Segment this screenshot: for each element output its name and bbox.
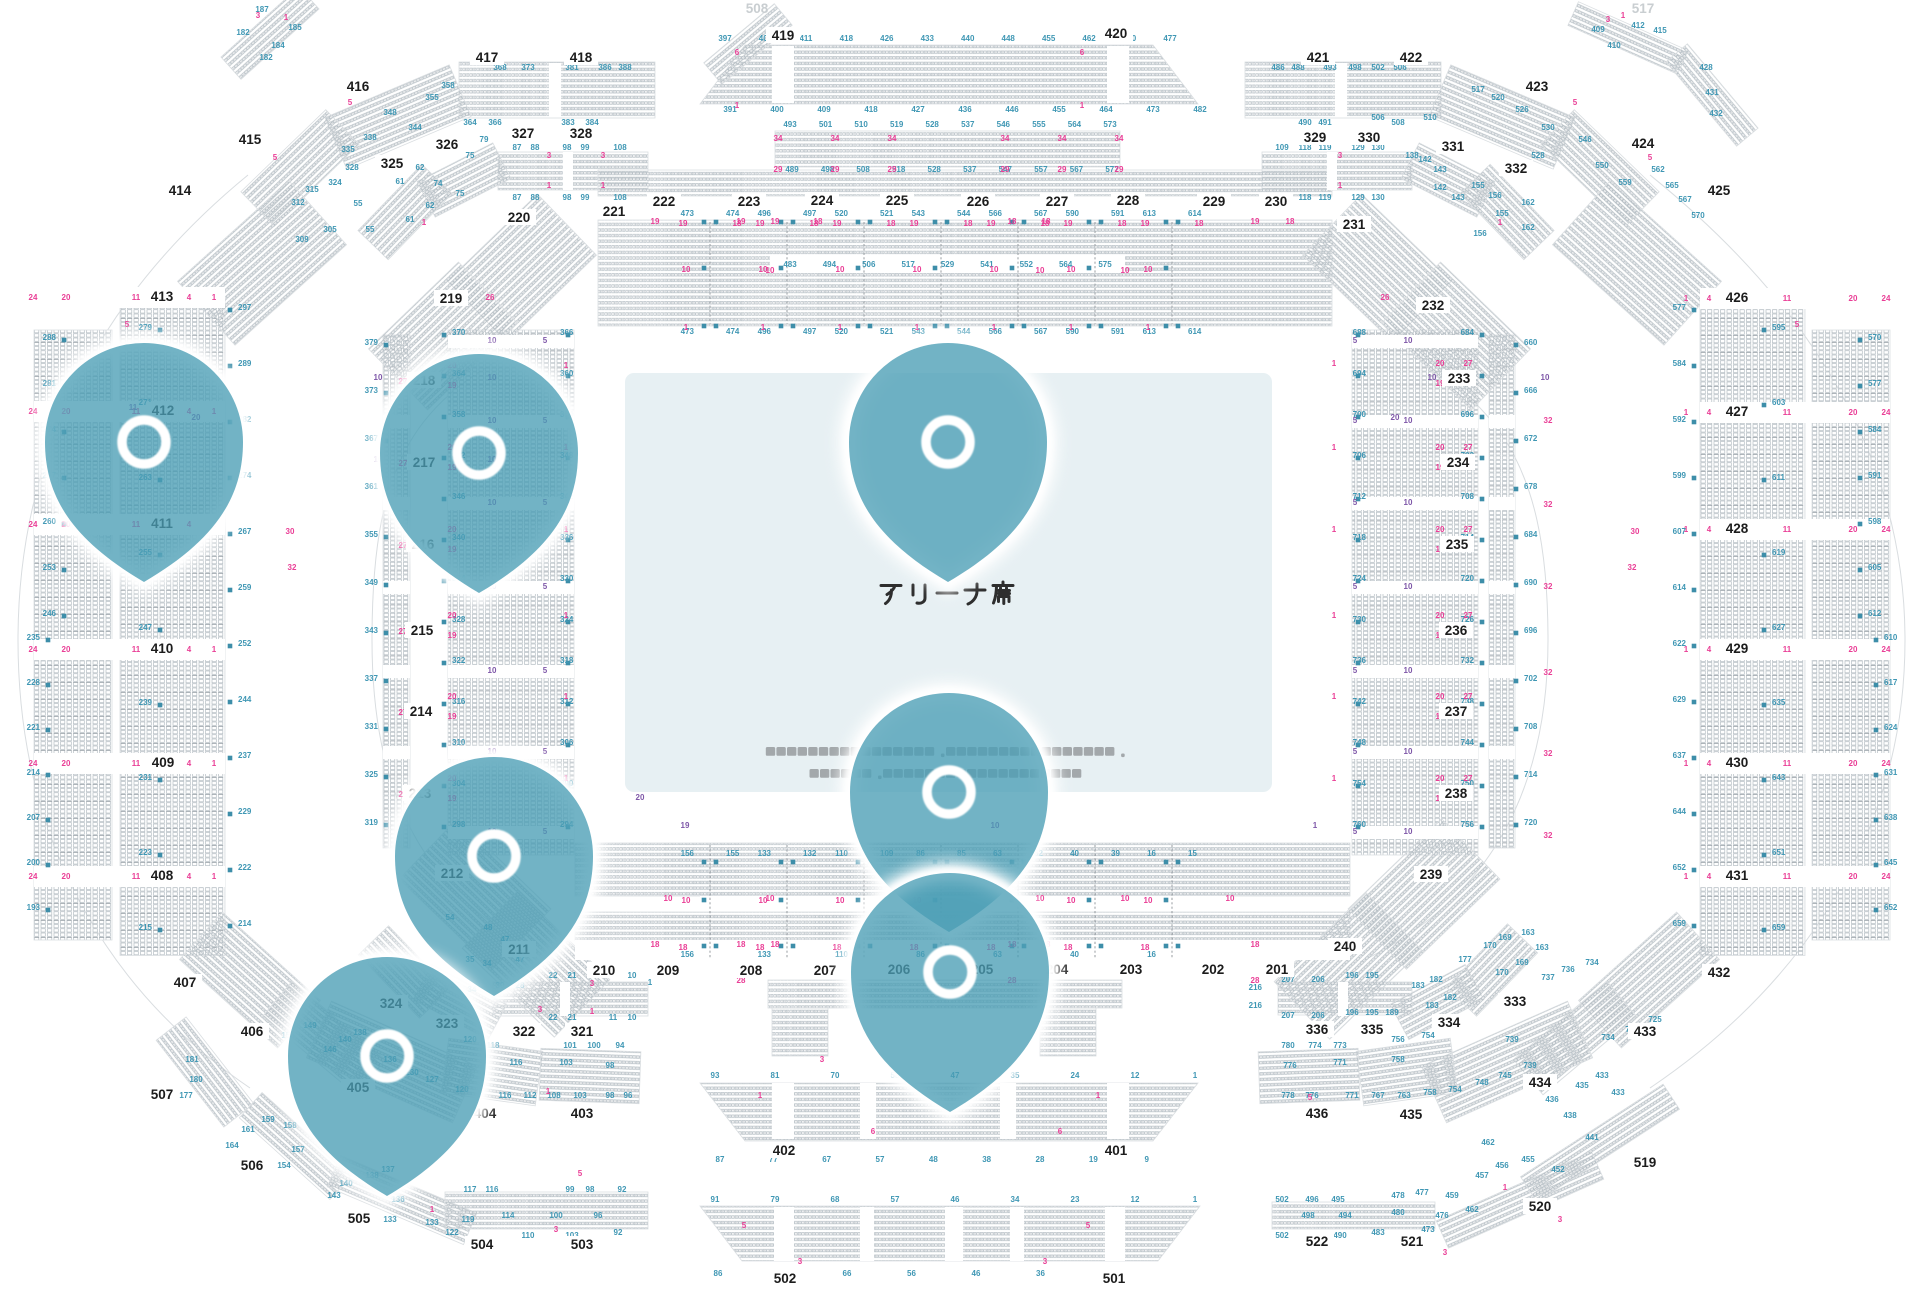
svg-text:5: 5 (348, 98, 353, 107)
svg-text:773: 773 (1333, 1041, 1347, 1050)
svg-text:1: 1 (1684, 294, 1689, 303)
svg-text:10: 10 (1144, 896, 1153, 905)
svg-text:18: 18 (1251, 940, 1260, 949)
svg-text:564: 564 (1068, 120, 1082, 129)
svg-text:87: 87 (513, 193, 522, 202)
svg-text:183: 183 (1425, 1001, 1439, 1010)
svg-text:520: 520 (1491, 93, 1505, 102)
svg-text:88: 88 (531, 143, 540, 152)
svg-text:48: 48 (929, 1155, 938, 1164)
svg-text:433: 433 (1611, 1088, 1625, 1097)
svg-text:20: 20 (62, 872, 71, 881)
svg-text:483: 483 (1371, 1228, 1385, 1237)
svg-text:221: 221 (603, 204, 626, 219)
svg-text:132: 132 (803, 849, 817, 858)
svg-text:415: 415 (1653, 26, 1667, 35)
svg-text:638: 638 (1884, 813, 1898, 822)
svg-text:163: 163 (1535, 943, 1549, 952)
svg-text:742: 742 (1353, 697, 1367, 706)
svg-text:1: 1 (1684, 408, 1689, 417)
svg-text:428: 428 (1699, 63, 1713, 72)
svg-text:1: 1 (1069, 323, 1074, 332)
svg-text:98: 98 (606, 1091, 615, 1100)
svg-text:237: 237 (238, 751, 252, 760)
svg-text:26: 26 (486, 293, 495, 302)
svg-text:528: 528 (926, 120, 940, 129)
svg-text:732: 732 (1461, 656, 1475, 665)
svg-text:659: 659 (1673, 919, 1687, 928)
svg-text:235: 235 (1446, 537, 1469, 552)
svg-text:473: 473 (1146, 105, 1160, 114)
svg-text:409: 409 (152, 755, 175, 770)
svg-text:1: 1 (1684, 645, 1689, 654)
svg-text:330: 330 (560, 574, 574, 583)
svg-text:739: 739 (1523, 1061, 1537, 1070)
svg-text:119: 119 (462, 1215, 475, 1224)
svg-text:1: 1 (564, 361, 569, 370)
svg-text:780: 780 (1281, 1041, 1295, 1050)
svg-text:1: 1 (1332, 692, 1337, 701)
svg-text:474: 474 (726, 327, 740, 336)
svg-text:330: 330 (1358, 130, 1381, 145)
svg-text:501: 501 (1103, 1271, 1126, 1286)
svg-text:544: 544 (957, 209, 971, 218)
svg-text:10: 10 (628, 971, 637, 980)
svg-text:183: 183 (1411, 981, 1425, 990)
svg-text:10: 10 (682, 896, 691, 905)
svg-text:62: 62 (416, 163, 425, 172)
svg-text:27: 27 (1464, 525, 1473, 534)
svg-text:11: 11 (132, 759, 141, 768)
svg-text:1: 1 (684, 323, 689, 332)
svg-text:20: 20 (1391, 413, 1400, 422)
svg-text:19: 19 (1064, 219, 1073, 228)
svg-text:758: 758 (1423, 1088, 1437, 1097)
svg-text:1: 1 (284, 13, 289, 22)
svg-text:4: 4 (1707, 294, 1712, 303)
svg-text:5: 5 (543, 336, 548, 345)
svg-text:310: 310 (452, 738, 466, 747)
svg-text:28: 28 (1251, 976, 1260, 985)
svg-text:170: 170 (1483, 941, 1497, 950)
svg-text:489: 489 (785, 165, 799, 174)
svg-text:490: 490 (1298, 118, 1312, 127)
svg-text:18: 18 (887, 219, 896, 228)
svg-text:18: 18 (771, 940, 780, 949)
svg-text:1: 1 (1080, 101, 1085, 110)
svg-text:10: 10 (1036, 266, 1045, 275)
svg-text:452: 452 (1551, 1165, 1565, 1174)
svg-text:29: 29 (831, 165, 840, 174)
svg-text:478: 478 (1391, 1191, 1405, 1200)
svg-text:21: 21 (568, 971, 577, 980)
svg-text:1: 1 (1332, 774, 1337, 783)
svg-text:416: 416 (347, 79, 370, 94)
svg-text:714: 714 (1524, 770, 1538, 779)
svg-text:109: 109 (1275, 143, 1289, 152)
svg-text:20: 20 (62, 293, 71, 302)
svg-text:233: 233 (1448, 371, 1471, 386)
svg-text:24: 24 (1882, 759, 1891, 768)
svg-text:18: 18 (756, 943, 765, 952)
svg-text:19: 19 (756, 219, 765, 228)
svg-text:575: 575 (1098, 260, 1112, 269)
svg-text:237: 237 (1445, 704, 1468, 719)
svg-text:519: 519 (890, 120, 904, 129)
svg-text:66: 66 (843, 1269, 852, 1278)
svg-text:526: 526 (1515, 105, 1529, 114)
svg-text:29: 29 (888, 165, 897, 174)
svg-text:403: 403 (571, 1106, 594, 1121)
svg-text:326: 326 (436, 137, 459, 152)
svg-text:4: 4 (187, 645, 192, 654)
svg-text:11: 11 (132, 645, 141, 654)
svg-text:24: 24 (1071, 1071, 1080, 1080)
svg-text:203: 203 (1120, 962, 1143, 977)
svg-text:496: 496 (1305, 1195, 1319, 1204)
svg-text:177: 177 (179, 1091, 193, 1100)
svg-text:34: 34 (888, 134, 897, 143)
svg-text:763: 763 (1397, 1091, 1411, 1100)
svg-text:29: 29 (1115, 165, 1124, 174)
svg-text:55: 55 (354, 199, 363, 208)
svg-text:19: 19 (987, 219, 996, 228)
svg-text:497: 497 (803, 327, 817, 336)
svg-text:426: 426 (1726, 290, 1749, 305)
svg-text:557: 557 (1034, 165, 1048, 174)
svg-text:5: 5 (1353, 416, 1358, 425)
svg-text:567: 567 (1034, 327, 1048, 336)
svg-text:459: 459 (1445, 1191, 1459, 1200)
svg-text:240: 240 (1334, 939, 1357, 954)
svg-text:18: 18 (1286, 217, 1295, 226)
svg-text:34: 34 (831, 134, 840, 143)
svg-text:432: 432 (1708, 965, 1731, 980)
svg-text:39: 39 (1111, 849, 1120, 858)
svg-text:20: 20 (1849, 525, 1858, 534)
svg-text:20: 20 (1849, 294, 1858, 303)
svg-text:745: 745 (1498, 1071, 1512, 1080)
svg-text:20: 20 (62, 645, 71, 654)
svg-text:400: 400 (770, 105, 784, 114)
svg-text:46: 46 (951, 1195, 960, 1204)
svg-text:27: 27 (1464, 359, 1473, 368)
svg-text:659: 659 (1772, 923, 1786, 932)
svg-text:530: 530 (1541, 123, 1555, 132)
svg-text:10: 10 (1404, 666, 1413, 675)
svg-text:736: 736 (1561, 965, 1575, 974)
svg-text:100: 100 (549, 1211, 563, 1220)
svg-text:98: 98 (563, 193, 572, 202)
svg-text:321: 321 (571, 1024, 594, 1039)
svg-text:355: 355 (425, 93, 439, 102)
svg-text:427: 427 (911, 105, 925, 114)
svg-text:32: 32 (1544, 416, 1553, 425)
svg-text:386: 386 (598, 63, 612, 72)
svg-text:1: 1 (1621, 11, 1626, 20)
svg-text:19: 19 (448, 712, 457, 721)
svg-text:408: 408 (151, 868, 174, 883)
svg-text:1: 1 (1684, 872, 1689, 881)
svg-text:86: 86 (714, 1269, 723, 1278)
svg-text:196: 196 (1345, 1008, 1359, 1017)
svg-text:476: 476 (1435, 1211, 1449, 1220)
svg-text:522: 522 (1306, 1234, 1329, 1249)
svg-text:10: 10 (1226, 894, 1235, 903)
svg-text:206: 206 (1311, 975, 1325, 984)
svg-text:483: 483 (783, 260, 797, 269)
svg-text:244: 244 (238, 695, 252, 704)
svg-text:34: 34 (1058, 134, 1067, 143)
svg-text:5: 5 (1308, 1093, 1313, 1102)
svg-text:631: 631 (1884, 768, 1898, 777)
svg-text:169: 169 (1498, 933, 1512, 942)
svg-text:230: 230 (1265, 194, 1288, 209)
svg-text:331: 331 (365, 722, 379, 731)
svg-text:652: 652 (1884, 903, 1898, 912)
svg-text:462: 462 (1082, 34, 1096, 43)
svg-text:289: 289 (238, 359, 252, 368)
svg-text:480: 480 (1391, 1208, 1405, 1217)
svg-text:22: 22 (549, 971, 558, 980)
svg-text:20: 20 (448, 692, 457, 701)
svg-text:10: 10 (836, 265, 845, 274)
svg-text:424: 424 (1632, 136, 1655, 151)
svg-text:696: 696 (1461, 410, 1475, 419)
svg-text:448: 448 (1002, 34, 1016, 43)
svg-text:133: 133 (383, 1215, 397, 1224)
svg-text:112: 112 (524, 1091, 537, 1100)
svg-text:91: 91 (711, 1195, 720, 1204)
svg-text:508: 508 (856, 165, 870, 174)
svg-text:94: 94 (616, 1041, 625, 1050)
svg-text:435: 435 (1400, 1107, 1423, 1122)
svg-text:19: 19 (679, 219, 688, 228)
svg-text:694: 694 (1353, 369, 1367, 378)
svg-text:155: 155 (1495, 209, 1509, 218)
svg-text:1: 1 (1684, 759, 1689, 768)
svg-text:10: 10 (759, 265, 768, 274)
svg-text:537: 537 (963, 165, 977, 174)
svg-text:550: 550 (1595, 161, 1609, 170)
svg-text:418: 418 (864, 105, 878, 114)
svg-text:92: 92 (618, 1185, 627, 1194)
svg-text:55: 55 (366, 225, 375, 234)
svg-text:142: 142 (1418, 155, 1432, 164)
svg-text:730: 730 (1353, 615, 1367, 624)
svg-text:117: 117 (464, 1185, 477, 1194)
svg-text:11: 11 (132, 872, 141, 881)
svg-text:92: 92 (614, 1228, 623, 1237)
svg-text:101: 101 (563, 1041, 577, 1050)
svg-text:584: 584 (1673, 359, 1687, 368)
svg-text:19: 19 (448, 631, 457, 640)
svg-text:438: 438 (1563, 1111, 1577, 1120)
svg-text:20: 20 (1436, 611, 1445, 620)
svg-text:1: 1 (212, 872, 217, 881)
svg-text:11: 11 (1783, 525, 1792, 534)
svg-text:373: 373 (365, 386, 379, 395)
svg-text:253: 253 (43, 563, 57, 572)
svg-text:414: 414 (169, 183, 192, 198)
svg-text:98: 98 (563, 143, 572, 152)
svg-text:19: 19 (651, 217, 660, 226)
svg-text:613: 613 (1143, 209, 1157, 218)
svg-text:427: 427 (1726, 404, 1749, 419)
svg-text:20: 20 (1436, 359, 1445, 368)
svg-text:434: 434 (1529, 1075, 1552, 1090)
svg-text:5: 5 (1353, 747, 1358, 756)
svg-text:163: 163 (1521, 928, 1535, 937)
svg-text:706: 706 (1353, 451, 1367, 460)
svg-text:220: 220 (508, 210, 531, 225)
svg-text:355: 355 (365, 530, 379, 539)
svg-text:577: 577 (1673, 303, 1687, 312)
svg-text:57: 57 (876, 1155, 885, 1164)
svg-text:1: 1 (564, 692, 569, 701)
svg-text:87: 87 (716, 1155, 725, 1164)
svg-text:614: 614 (1188, 327, 1202, 336)
svg-text:748: 748 (1475, 1078, 1489, 1087)
svg-text:11: 11 (1783, 759, 1792, 768)
svg-text:9: 9 (1144, 1155, 1149, 1164)
svg-text:552: 552 (1020, 260, 1034, 269)
svg-text:24: 24 (1882, 645, 1891, 654)
svg-text:335: 335 (1361, 1022, 1384, 1037)
svg-text:87: 87 (513, 143, 522, 152)
svg-text:614: 614 (1188, 209, 1202, 218)
svg-text:776: 776 (1283, 1061, 1297, 1070)
svg-text:10: 10 (1144, 265, 1153, 274)
svg-text:133: 133 (758, 849, 772, 858)
svg-text:348: 348 (383, 108, 397, 117)
svg-text:75: 75 (466, 151, 475, 160)
svg-text:1: 1 (1193, 1195, 1198, 1204)
svg-text:401: 401 (1105, 1143, 1128, 1158)
svg-text:322: 322 (513, 1024, 536, 1039)
svg-text:343: 343 (365, 626, 379, 635)
svg-text:546: 546 (1578, 135, 1592, 144)
svg-text:18: 18 (810, 219, 819, 228)
svg-text:201: 201 (1266, 962, 1289, 977)
svg-text:10: 10 (1541, 373, 1550, 382)
svg-text:455: 455 (1052, 105, 1066, 114)
svg-text:75: 75 (456, 189, 465, 198)
svg-text:99: 99 (581, 193, 590, 202)
svg-text:231: 231 (1343, 217, 1366, 232)
svg-text:433: 433 (1595, 1071, 1609, 1080)
svg-text:3: 3 (1558, 1215, 1563, 1224)
svg-text:6: 6 (871, 1127, 876, 1136)
svg-text:652: 652 (1673, 863, 1687, 872)
svg-text:20: 20 (62, 759, 71, 768)
svg-text:79: 79 (480, 135, 489, 144)
svg-text:18: 18 (1064, 943, 1073, 952)
svg-text:133: 133 (425, 1218, 439, 1227)
svg-text:234: 234 (1447, 455, 1470, 470)
svg-text:306: 306 (560, 738, 574, 747)
svg-text:322: 322 (452, 656, 466, 665)
svg-text:720: 720 (1461, 574, 1475, 583)
svg-text:19: 19 (910, 219, 919, 228)
svg-text:591: 591 (1111, 327, 1125, 336)
svg-text:164: 164 (225, 1141, 239, 1150)
svg-text:758: 758 (1391, 1055, 1405, 1064)
svg-text:18: 18 (1041, 219, 1050, 228)
svg-text:349: 349 (365, 578, 379, 587)
svg-text:98: 98 (606, 1061, 615, 1070)
svg-text:754: 754 (1421, 1031, 1435, 1040)
svg-text:34: 34 (774, 134, 783, 143)
svg-text:508: 508 (746, 1, 769, 16)
svg-text:436: 436 (1545, 1095, 1559, 1104)
svg-text:331: 331 (1442, 139, 1465, 154)
svg-text:1: 1 (838, 323, 843, 332)
svg-text:129: 129 (1351, 193, 1365, 202)
svg-text:27: 27 (1464, 611, 1473, 620)
svg-text:493: 493 (783, 120, 797, 129)
svg-text:498: 498 (1348, 63, 1362, 72)
svg-text:99: 99 (581, 143, 590, 152)
svg-text:156: 156 (1488, 191, 1502, 200)
svg-text:18: 18 (1195, 219, 1204, 228)
svg-text:20: 20 (1849, 408, 1858, 417)
svg-text:62: 62 (426, 201, 435, 210)
svg-text:162: 162 (1521, 198, 1535, 207)
svg-text:619: 619 (1772, 548, 1786, 557)
svg-text:155: 155 (1471, 181, 1485, 190)
svg-text:555: 555 (1032, 120, 1046, 129)
svg-text:503: 503 (571, 1237, 594, 1252)
svg-text:239: 239 (139, 698, 153, 707)
svg-text:18: 18 (964, 219, 973, 228)
svg-text:570: 570 (1691, 211, 1705, 220)
svg-text:130: 130 (1371, 193, 1385, 202)
svg-text:734: 734 (1601, 1033, 1615, 1042)
svg-text:10: 10 (374, 373, 383, 382)
svg-text:214: 214 (238, 919, 252, 928)
svg-text:252: 252 (238, 639, 252, 648)
svg-text:441: 441 (1585, 1133, 1599, 1142)
svg-text:502: 502 (774, 1271, 797, 1286)
svg-text:27: 27 (1464, 774, 1473, 783)
svg-text:236: 236 (1445, 623, 1468, 638)
svg-text:96: 96 (624, 1091, 633, 1100)
svg-text:702: 702 (1524, 674, 1538, 683)
svg-text:93: 93 (711, 1071, 720, 1080)
svg-text:122: 122 (445, 1228, 459, 1237)
svg-text:767: 767 (1371, 1091, 1385, 1100)
svg-text:520: 520 (1529, 1199, 1552, 1214)
svg-text:1: 1 (1332, 359, 1337, 368)
svg-text:221: 221 (27, 723, 41, 732)
svg-text:708: 708 (1461, 492, 1475, 501)
svg-text:11: 11 (132, 293, 141, 302)
svg-text:446: 446 (1005, 105, 1019, 114)
svg-text:3: 3 (538, 1005, 543, 1014)
svg-text:3: 3 (1338, 151, 1343, 160)
svg-text:182: 182 (1443, 993, 1457, 1002)
svg-text:1: 1 (601, 181, 606, 190)
svg-text:19: 19 (833, 219, 842, 228)
svg-text:315: 315 (305, 185, 319, 194)
svg-text:5: 5 (1648, 153, 1653, 162)
svg-text:333: 333 (1504, 994, 1527, 1009)
svg-text:200: 200 (27, 858, 41, 867)
svg-text:520: 520 (835, 209, 849, 218)
svg-text:195: 195 (1365, 1008, 1379, 1017)
svg-text:224: 224 (811, 193, 834, 208)
